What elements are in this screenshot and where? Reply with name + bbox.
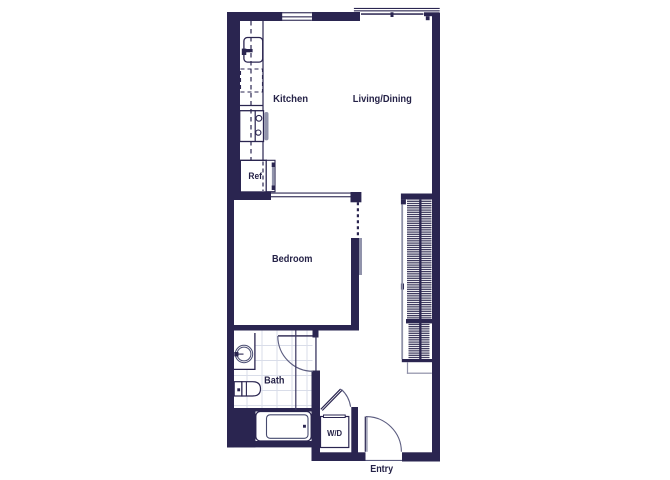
svg-text:Ref: Ref: [248, 170, 262, 181]
svg-text:Bedroom: Bedroom: [272, 254, 313, 265]
svg-text:Entry: Entry: [370, 464, 394, 475]
svg-text:Living/Dining: Living/Dining: [353, 94, 412, 105]
svg-text:Kitchen: Kitchen: [273, 94, 308, 105]
svg-text:W/D: W/D: [327, 429, 342, 438]
svg-text:Bath: Bath: [264, 376, 284, 387]
